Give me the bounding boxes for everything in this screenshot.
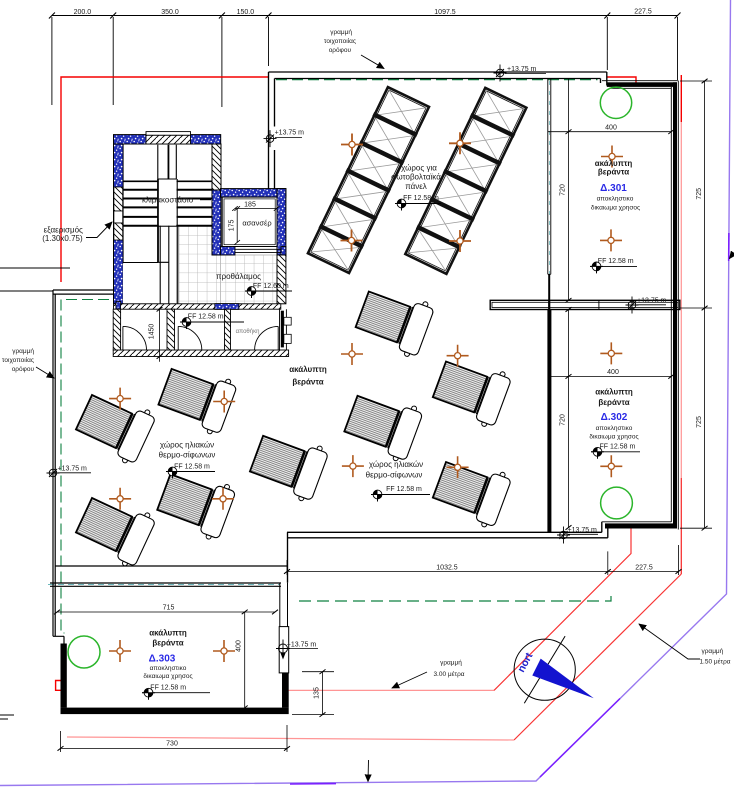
svg-text:χώρος ηλιακών: χώρος ηλιακών [160, 441, 214, 450]
svg-text:ασανσέρ: ασανσέρ [242, 219, 271, 228]
svg-text:πάνελ: πάνελ [405, 182, 427, 191]
svg-text:βεράντα: βεράντα [152, 639, 183, 648]
svg-text:τοιχοποιίας: τοιχοποιίας [324, 37, 356, 45]
svg-text:αποκληστικο: αποκληστικο [597, 196, 634, 203]
svg-text:715: 715 [163, 605, 175, 612]
svg-text:185: 185 [244, 202, 256, 209]
svg-text:δικαιωμα χρησος: δικαιωμα χρησος [591, 205, 640, 212]
svg-text:κλιμακοστάσιο: κλιμακοστάσιο [142, 196, 194, 205]
svg-text:+13.75 m: +13.75 m [637, 298, 667, 305]
svg-text:730: 730 [166, 741, 178, 748]
svg-text:Δ.302: Δ.302 [601, 412, 628, 423]
svg-text:725: 725 [696, 188, 703, 200]
svg-text:βεράντα: βεράντα [598, 168, 629, 177]
svg-text:+13.75 m: +13.75 m [507, 66, 537, 73]
svg-text:FF 12.58 m: FF 12.58 m [188, 314, 224, 321]
svg-text:θερμο-σίφωνων: θερμο-σίφωνων [366, 471, 423, 480]
svg-text:725: 725 [696, 416, 703, 428]
svg-text:γραμμή: γραμμή [12, 348, 34, 355]
svg-text:(1.30x0.75): (1.30x0.75) [42, 234, 83, 243]
svg-text:227.5: 227.5 [635, 565, 653, 572]
svg-text:150.0: 150.0 [237, 9, 255, 16]
svg-text:3.00 μέτρα: 3.00 μέτρα [433, 670, 464, 678]
svg-text:720: 720 [560, 414, 567, 426]
svg-text:δικαιωμα χρησος: δικαιωμα χρησος [143, 673, 192, 680]
svg-text:1450: 1450 [149, 324, 156, 340]
svg-text:χώρος ηλιακών: χώρος ηλιακών [369, 460, 423, 469]
svg-text:Δ.303: Δ.303 [149, 654, 176, 665]
svg-text:τοιχοποιίας: τοιχοποιίας [2, 356, 34, 364]
svg-text:χώρος για: χώρος για [401, 164, 437, 173]
svg-text:175: 175 [229, 219, 236, 231]
svg-text:FF 12.58 m: FF 12.58 m [174, 463, 210, 470]
svg-text:ορόφου: ορόφου [329, 46, 352, 54]
svg-text:FF 12.58 m: FF 12.58 m [386, 486, 422, 493]
svg-text:γραμμή: γραμμή [701, 648, 723, 655]
svg-text:FF 12.58 m: FF 12.58 m [598, 258, 634, 265]
svg-text:ορόφου: ορόφου [12, 365, 35, 373]
svg-text:227.5: 227.5 [634, 9, 652, 16]
svg-text:θερμο-σίφωνων: θερμο-σίφωνων [159, 451, 216, 460]
svg-text:γραμμή: γραμμή [440, 660, 462, 667]
svg-text:+13.75 m: +13.75 m [275, 130, 305, 137]
svg-text:αποκληστικο: αποκληστικο [596, 425, 633, 432]
svg-text:ακάλυπτη: ακάλυπτη [289, 365, 327, 374]
svg-text:ακάλυπτη: ακάλυπτη [149, 629, 187, 638]
svg-text:400: 400 [607, 369, 619, 376]
svg-text:1.50 μέτρα: 1.50 μέτρα [699, 658, 730, 666]
svg-text:δικαιωμα χρησος: δικαιωμα χρησος [589, 434, 638, 441]
svg-text:ακάλυπτη: ακάλυπτη [595, 159, 633, 168]
svg-text:FF 12.58 m: FF 12.58 m [403, 195, 439, 202]
svg-text:350.0: 350.0 [161, 9, 179, 16]
svg-text:+13.75 m: +13.75 m [287, 642, 317, 649]
svg-text:προθάλαμος: προθάλαμος [216, 272, 261, 281]
svg-text:400: 400 [605, 125, 617, 132]
svg-text:1097.5: 1097.5 [434, 9, 456, 16]
svg-text:αποθήκη: αποθήκη [236, 328, 260, 335]
svg-text:γραμμή: γραμμή [330, 29, 352, 36]
svg-text:Δ.301: Δ.301 [600, 183, 627, 194]
svg-text:FF 12.58 m: FF 12.58 m [600, 444, 636, 451]
svg-text:135: 135 [314, 687, 321, 699]
svg-text:+13.75 m: +13.75 m [58, 466, 88, 473]
svg-text:ακάλυπτη: ακάλυπτη [595, 388, 633, 397]
svg-text:400: 400 [236, 640, 243, 652]
svg-text:1032.5: 1032.5 [436, 565, 458, 572]
svg-text:φωτοβολταϊκά: φωτοβολταϊκά [391, 173, 441, 182]
svg-text:200.0: 200.0 [74, 9, 92, 16]
svg-text:βεράντα: βεράντα [292, 378, 323, 387]
svg-text:720: 720 [560, 184, 567, 196]
svg-text:+13.75 m: +13.75 m [568, 527, 598, 534]
svg-text:βεράντα: βεράντα [598, 398, 629, 407]
svg-text:αποκληστικο: αποκληστικο [150, 665, 187, 672]
svg-text:FF 12.58 m: FF 12.58 m [150, 685, 186, 692]
svg-text:FF 12.60 m: FF 12.60 m [253, 283, 289, 290]
